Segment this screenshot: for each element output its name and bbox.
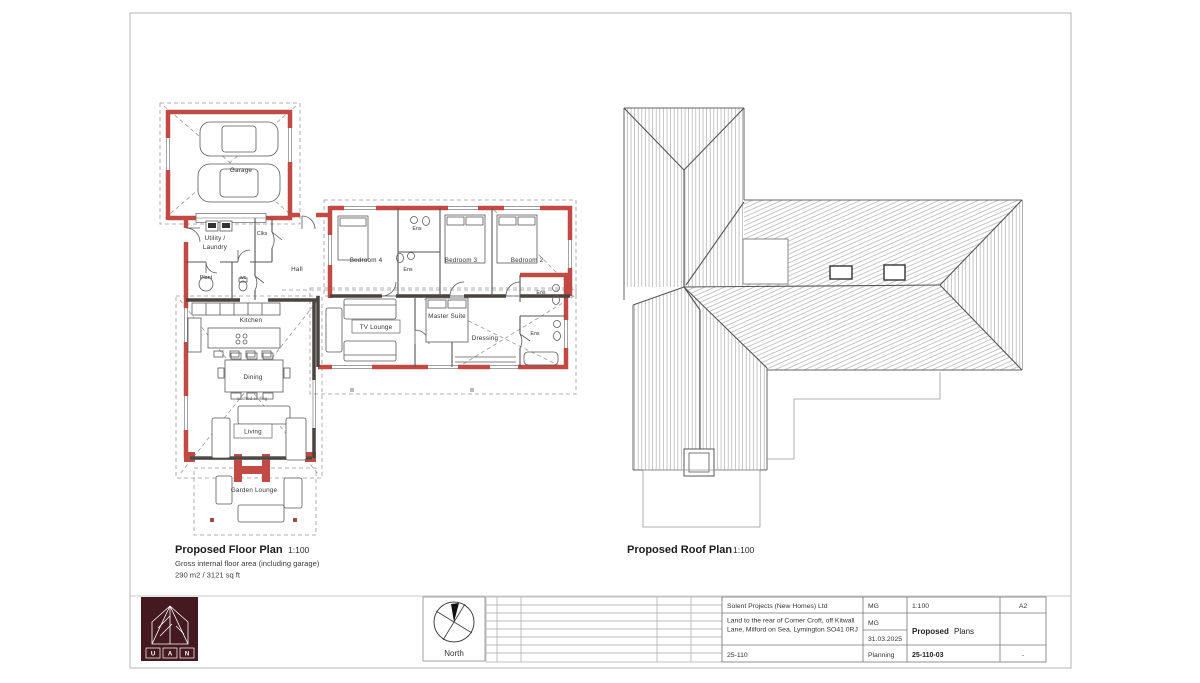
room-label-tv-lounge: TV Lounge [360, 324, 393, 331]
room-label-kitchen: Kitchen [240, 317, 263, 324]
tb-drawing-title-bold: Proposed [912, 627, 949, 636]
tb-drawing-title-rest: Plans [954, 627, 974, 636]
floor-plan-area: 290 m2 / 3121 sq ft [175, 571, 241, 580]
roof-plan-title: Proposed Roof Plan [627, 544, 732, 556]
room-label-bedroom4: Bedroom 4 [350, 257, 383, 264]
rooflight-small-2 [884, 265, 905, 280]
room-label-dining: Dining [243, 374, 262, 381]
room-label-garage: Garage [230, 167, 253, 174]
floor-plan-scale: 1:100 [288, 545, 310, 555]
scanned-drawing-sheet: Garage Utility / Laundry Clks Hall Plant… [0, 0, 1200, 683]
tb-drawn: MG [868, 603, 879, 610]
north-label: North [444, 649, 464, 658]
room-label-ens-top: Ens [412, 226, 422, 232]
tb-status: Planning [868, 652, 895, 659]
room-label-bedroom2: Bedroom 2 [511, 257, 544, 264]
rooflight-small-1 [830, 266, 852, 279]
room-label-garden-lounge: Garden Lounge [231, 487, 278, 494]
tb-job-number: 25-110 [727, 652, 748, 659]
tb-paper-size: A2 [1019, 603, 1028, 610]
tb-checked: MG [868, 620, 879, 627]
logo-letter-n: N [185, 652, 189, 658]
post-marker [293, 518, 297, 522]
room-label-ens-master: Ens [530, 331, 540, 337]
post-marker [350, 388, 354, 392]
tb-scale: 1:100 [912, 603, 929, 610]
note-vaulted-ceiling: vaulted ceiling [237, 396, 268, 402]
logo-letter-a: A [168, 652, 173, 658]
room-label-plant: Plant [200, 275, 213, 281]
room-label-utility-1: Utility / [205, 235, 226, 242]
tb-revision: - [1022, 652, 1024, 659]
floor-plan-subtitle: Gross internal floor area (including gar… [175, 559, 320, 568]
floor-plan-title: Proposed Floor Plan [175, 544, 283, 556]
tb-date: 31.03.2025 [868, 636, 902, 643]
roof-lantern [743, 239, 788, 284]
roof-plan-scale: 1:100 [733, 545, 755, 555]
room-label-utility-2: Laundry [203, 244, 228, 251]
room-label-ens-b2: Ens [536, 290, 546, 296]
post-marker [210, 518, 214, 522]
room-label-hall: Hall [291, 266, 303, 273]
tb-address-line2: Lane, Milford on Sea, Lymington SO41 0RJ [727, 627, 858, 634]
logo: U A N [141, 597, 198, 661]
room-label-ens-mid: Ens [403, 267, 413, 273]
tb-company: Solent Projects (New Homes) Ltd [727, 603, 828, 610]
room-label-master: Master Suite [428, 313, 466, 320]
tb-address-line1: Land to the rear of Corner Croft, off Ki… [727, 618, 855, 625]
tb-drawing-number: 25-110-03 [912, 652, 944, 659]
north-arrow: North [423, 597, 485, 661]
room-label-living: Living [244, 429, 262, 436]
room-label-wc: wc [239, 275, 247, 281]
room-label-clks: Clks [257, 231, 268, 237]
post-marker [470, 388, 474, 392]
revision-table [486, 597, 722, 662]
drawing-canvas: Garage Utility / Laundry Clks Hall Plant… [0, 0, 1200, 683]
logo-letter-u: U [151, 652, 155, 658]
room-label-bedroom3: Bedroom 3 [445, 257, 478, 264]
room-label-dressing: Dressing [472, 335, 499, 342]
